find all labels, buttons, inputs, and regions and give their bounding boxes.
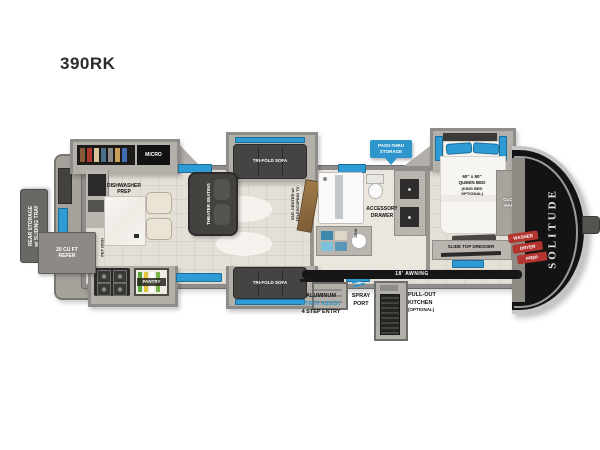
- spray-port-label: SPRAY PORT: [346, 292, 376, 308]
- pet-dish-label: PET DISH: [98, 234, 107, 262]
- prep-label: PREP: [517, 251, 548, 264]
- awning-bar: 18' AWNING: [302, 270, 522, 279]
- microwave: MICRO: [137, 145, 170, 165]
- floorplan: REAR STORAGE w/ SLIDING TRAY MIC: [0, 0, 600, 450]
- entry-label: ALUMINUM STRUT ASSIST 4 STEP ENTRY: [296, 292, 346, 316]
- floorplan-canvas: 390RK REAR STORAGE w/ SLIDING TRAY: [0, 0, 600, 450]
- pullout-label-line1: PULL-OUT: [408, 291, 456, 299]
- entry-label-line1: ALUMINUM: [296, 292, 346, 300]
- sofa-top-label: TRI-FOLD SOFA: [235, 158, 305, 164]
- sofa-bottom-label: TRI-FOLD SOFA: [235, 280, 305, 286]
- window: [452, 260, 484, 268]
- bathroom-vanity: [316, 226, 372, 256]
- slide-top-dresser: SLIDE TOP DRESSER: [432, 240, 512, 260]
- pantry-label: PANTRY: [137, 278, 166, 286]
- dining-chair: [146, 192, 172, 214]
- pass-thru-pointer: [385, 158, 397, 171]
- sofa-bottom-window: [235, 299, 305, 305]
- shower: [318, 172, 364, 224]
- pillow-left: [446, 142, 473, 155]
- pillow-right: [473, 142, 500, 155]
- accessory-label-line2: DRAWER: [360, 213, 404, 220]
- rear-window: [58, 208, 68, 234]
- theater-seating-label: THEATER SEATING: [203, 172, 213, 236]
- entry-label-line3: 4 STEP ENTRY: [296, 308, 346, 316]
- pass-thru-badge: PASS-THRU STORAGE: [370, 140, 412, 158]
- theater-seating: THEATER SEATING: [188, 172, 238, 236]
- dresser-label: SLIDE TOP DRESSER: [436, 244, 506, 250]
- spray-label-line1: SPRAY: [346, 292, 376, 300]
- dining-chair: [146, 218, 172, 240]
- washer-dryer-prep: WASHER DRYER PREP: [508, 230, 547, 270]
- accessory-drawer-label: ACCESSORY DRAWER: [360, 206, 404, 219]
- range-stove: [94, 268, 130, 296]
- refer-label-line2: REFER: [59, 253, 76, 259]
- pantry: PANTRY: [134, 268, 169, 296]
- sofa-slide-top: TRI-FOLD SOFA: [226, 132, 318, 181]
- toilet-bowl: [368, 183, 383, 199]
- pullout-label-line2: KITCHEN: [408, 299, 456, 307]
- pull-out-kitchen-label: PULL-OUT KITCHEN (OPTIONAL): [408, 291, 456, 313]
- bathroom-wall-right: [426, 170, 430, 276]
- microwave-label: MICRO: [145, 152, 162, 158]
- kitchen-island: [104, 196, 146, 246]
- micro-cabinet-slide: MICRO: [70, 139, 180, 174]
- grill: [380, 294, 400, 335]
- sofa-top-window: [235, 137, 305, 143]
- pullout-label-line3: (OPTIONAL): [408, 307, 456, 313]
- awning-label: 18' AWNING: [395, 271, 429, 277]
- headboard: [443, 133, 497, 141]
- window: [176, 273, 222, 282]
- pull-out-kitchen: [374, 281, 408, 341]
- refrigerator: 20 CU FT REFER: [38, 232, 96, 274]
- front-interior: [512, 158, 525, 302]
- accessory-label-line1: ACCESSORY: [360, 206, 404, 213]
- sink-label: SINK: [351, 222, 359, 244]
- pass-thru-line2: STORAGE: [380, 149, 402, 155]
- hitch-pin: [582, 216, 600, 234]
- queen-bed-label: 60" x 80" QUEEN BED (KING BED OPTIONAL): [444, 174, 500, 196]
- kitchen-slide: PANTRY: [88, 266, 178, 307]
- spray-label-line2: PORT: [346, 300, 376, 308]
- ent-center-label-line2: TELESCOPING TV: [295, 187, 300, 222]
- linen-closet: [394, 170, 426, 236]
- bed-option-label-2: OPTIONAL): [444, 191, 500, 196]
- ent-center-label: ENT. CENTER w/ TELESCOPING TV: [289, 172, 301, 236]
- cabinet-contents: [77, 145, 135, 165]
- entry-label-line2: STRUT ASSIST: [296, 300, 346, 308]
